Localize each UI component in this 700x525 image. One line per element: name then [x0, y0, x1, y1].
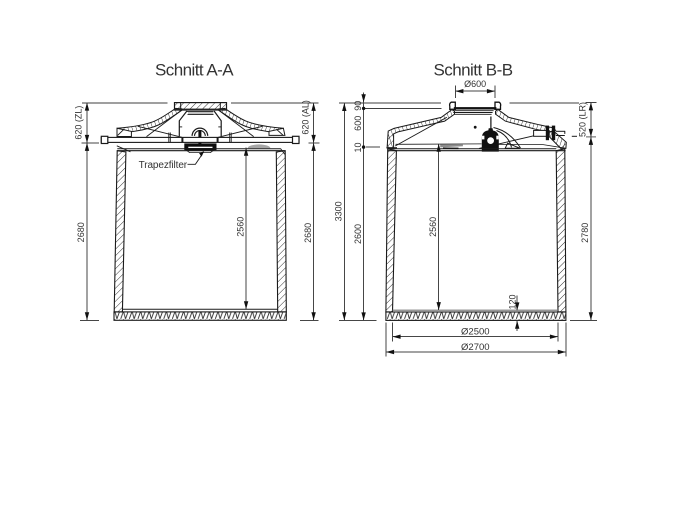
svg-text:620 (AL): 620 (AL): [300, 100, 310, 135]
svg-text:520 (LR): 520 (LR): [577, 102, 587, 137]
svg-text:Schnitt B-B: Schnitt B-B: [434, 61, 513, 80]
svg-text:90: 90: [353, 101, 363, 111]
svg-text:2560: 2560: [235, 217, 245, 237]
svg-text:2560: 2560: [428, 217, 438, 237]
svg-text:2600: 2600: [353, 224, 363, 244]
svg-text:Schnitt A-A: Schnitt A-A: [155, 61, 234, 80]
svg-text:2680: 2680: [303, 223, 313, 243]
svg-text:3300: 3300: [334, 201, 344, 221]
svg-text:10: 10: [353, 142, 363, 152]
svg-text:620 (ZL): 620 (ZL): [74, 106, 84, 140]
svg-text:Trapezfilter: Trapezfilter: [139, 160, 188, 171]
svg-text:600: 600: [353, 116, 363, 131]
svg-text:2780: 2780: [580, 223, 590, 243]
svg-text:Ø2700: Ø2700: [461, 342, 490, 353]
svg-text:2680: 2680: [76, 222, 86, 242]
svg-text:Ø2500: Ø2500: [461, 326, 490, 337]
svg-text:120: 120: [508, 294, 518, 309]
svg-text:Ø600: Ø600: [464, 79, 486, 89]
